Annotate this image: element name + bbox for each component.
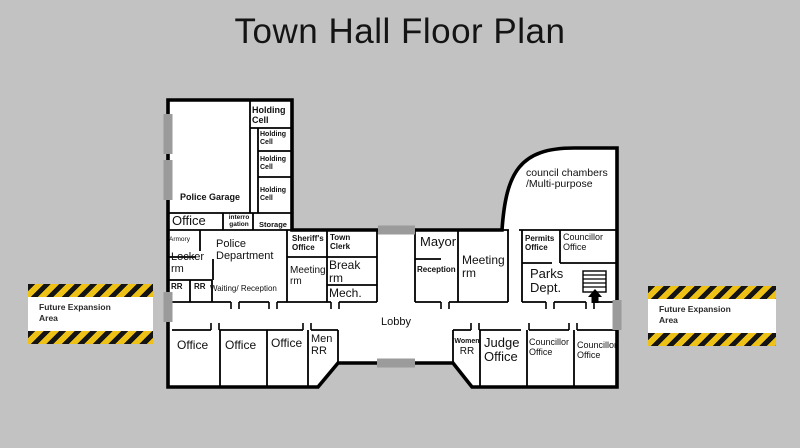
room-label-office-2: Office	[225, 339, 267, 352]
future-expansion-left: Future Expansion Area	[28, 284, 153, 344]
room-label-town-clerk: Town Clerk	[330, 234, 366, 251]
north-entrance-door	[378, 226, 415, 235]
floor-plan-drawing	[0, 0, 800, 448]
room-label-sheriffs-office: Sheriff's Office	[292, 235, 328, 252]
future-expansion-right-label: Future Expansion Area	[648, 299, 776, 333]
east-entrance-door	[613, 300, 622, 330]
room-label-permits-office: Permits Office	[525, 235, 563, 252]
room-label-meeting-rm-east: Meeting rm	[462, 254, 510, 280]
room-label-mech: Mech.	[329, 287, 375, 300]
hazard-stripe-top	[28, 284, 153, 297]
garage-door-1	[164, 114, 173, 154]
south-entrance-door	[377, 359, 415, 368]
floor-plan: Town Hall Floor Plan Police Garage Holdi…	[0, 0, 800, 448]
room-label-meeting-rm-west: Meeting rm	[290, 266, 330, 288]
room-label-interrogation: interro gation	[225, 214, 253, 228]
room-label-councillor-office-2: Councillor Office	[529, 338, 577, 357]
hazard-stripe-bottom	[28, 331, 153, 344]
room-label-reception: Reception	[417, 266, 461, 275]
room-label-locker-rm: Locker rm	[171, 252, 219, 276]
room-label-office-3: Office	[271, 337, 313, 350]
room-label-council-chambers: council chambers /Multi-purpose	[526, 168, 620, 191]
room-label-holding-cell-main: Holding Cell	[252, 106, 292, 125]
room-label-police-department: Police Department	[216, 239, 294, 263]
room-label-parks-dept: Parks Dept.	[530, 267, 582, 295]
room-label-storage: Storage	[254, 221, 292, 229]
room-label-office-1: Office	[177, 339, 219, 352]
west-entrance-door	[164, 292, 173, 322]
hazard-stripe-top	[648, 286, 776, 299]
room-label-police-office: Office	[172, 214, 220, 228]
hazard-stripe-bottom	[648, 333, 776, 346]
room-label-armory: Armory	[169, 236, 201, 243]
room-label-holding-cell-4: Holding Cell	[260, 187, 292, 202]
future-expansion-left-label: Future Expansion Area	[28, 297, 153, 331]
room-label-rr-1: RR	[171, 283, 189, 292]
room-label-councillor-office-1: Councillor Office	[563, 233, 615, 252]
future-expansion-right: Future Expansion Area	[648, 286, 776, 346]
room-label-break-rm: Break rm	[329, 259, 375, 285]
room-label-holding-cell-2: Holding Cell	[260, 131, 292, 146]
room-label-councillor-office-3: Councillor Office	[577, 341, 625, 360]
room-label-waiting-reception: Waiting/ Reception	[210, 285, 292, 294]
room-label-mayor: Mayor	[420, 235, 462, 249]
room-label-holding-cell-3: Holding Cell	[260, 156, 292, 171]
room-label-lobby: Lobby	[372, 317, 420, 329]
room-label-women-rr: Women RR	[452, 336, 482, 358]
room-label-men-rr: Men RR	[311, 334, 339, 358]
room-label-police-garage: Police Garage	[170, 193, 250, 203]
room-label-judge-office: Judge Office	[484, 336, 530, 364]
